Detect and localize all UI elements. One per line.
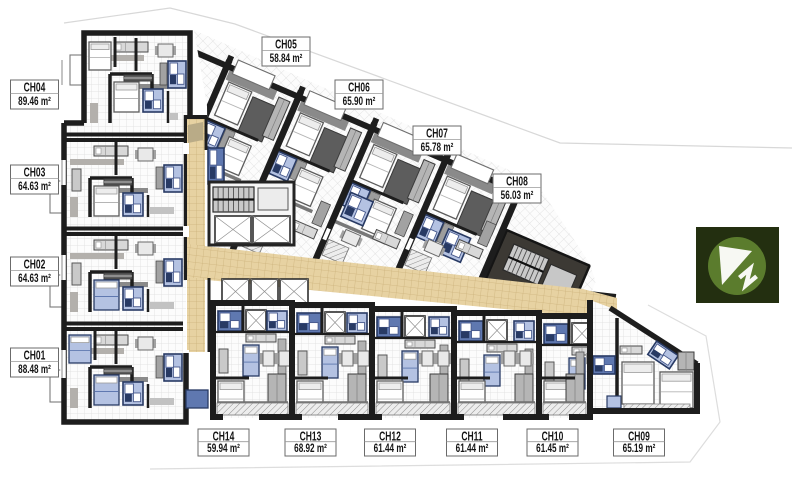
svg-text:CH02: CH02	[24, 258, 46, 272]
svg-text:65.90 m²: 65.90 m²	[343, 96, 376, 109]
svg-text:CH03: CH03	[24, 166, 46, 180]
svg-text:CH01: CH01	[24, 349, 46, 363]
svg-text:CH06: CH06	[348, 81, 370, 95]
svg-text:65.78 m²: 65.78 m²	[421, 142, 454, 155]
svg-text:65.19 m²: 65.19 m²	[623, 443, 656, 456]
svg-text:CH05: CH05	[275, 38, 297, 52]
svg-text:61.44 m²: 61.44 m²	[374, 443, 407, 456]
svg-text:89.46 m²: 89.46 m²	[18, 96, 51, 109]
svg-text:88.48 m²: 88.48 m²	[18, 364, 51, 377]
svg-text:68.92 m²: 68.92 m²	[294, 443, 327, 456]
svg-text:56.03 m²: 56.03 m²	[501, 190, 534, 203]
svg-text:59.94 m²: 59.94 m²	[207, 443, 240, 456]
svg-text:CH07: CH07	[426, 127, 448, 141]
svg-text:61.45 m²: 61.45 m²	[536, 443, 569, 456]
svg-text:58.84 m²: 58.84 m²	[270, 53, 303, 66]
svg-text:CH08: CH08	[506, 175, 528, 189]
svg-text:64.63 m²: 64.63 m²	[18, 181, 51, 194]
svg-text:64.63 m²: 64.63 m²	[18, 273, 51, 286]
svg-text:61.44 m²: 61.44 m²	[456, 443, 489, 456]
svg-text:CH04: CH04	[24, 81, 46, 95]
